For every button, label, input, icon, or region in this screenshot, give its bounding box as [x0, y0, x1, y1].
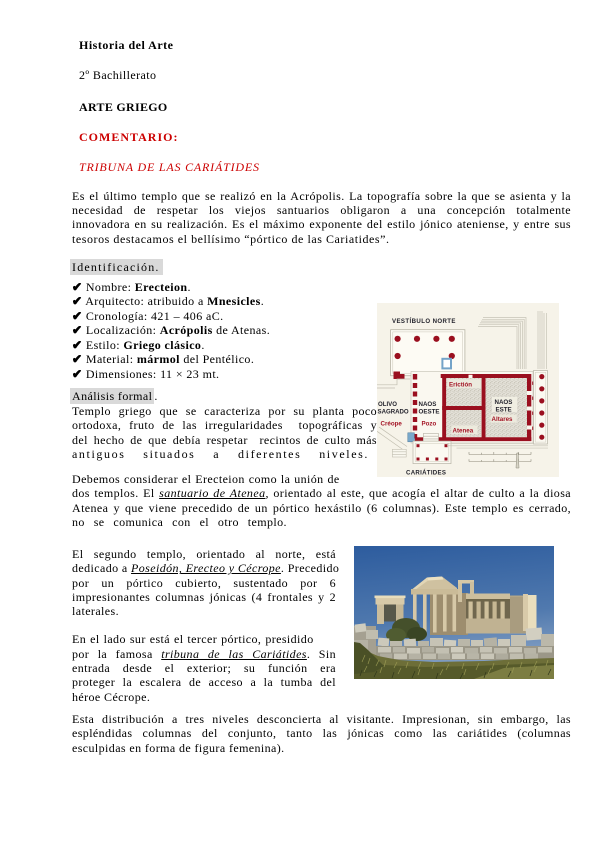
svg-text:Pozo: Pozo [422, 421, 437, 428]
svg-text:VESTÍBULO NORTE: VESTÍBULO NORTE [392, 317, 456, 325]
svg-text:Altares: Altares [492, 416, 514, 423]
svg-text:OESTE: OESTE [419, 409, 440, 416]
svg-text:NAOS: NAOS [495, 399, 513, 406]
svg-text:ESTE: ESTE [496, 407, 512, 414]
svg-text:CARIÁTIDES: CARIÁTIDES [406, 470, 446, 477]
svg-text:Atenea: Atenea [453, 428, 474, 435]
svg-text:Créope: Créope [381, 421, 403, 428]
svg-text:SAGRADO: SAGRADO [378, 409, 409, 416]
svg-text:NAOS: NAOS [419, 401, 437, 408]
svg-text:OLIVO: OLIVO [378, 401, 397, 408]
svg-text:Erictión: Erictión [449, 382, 472, 389]
